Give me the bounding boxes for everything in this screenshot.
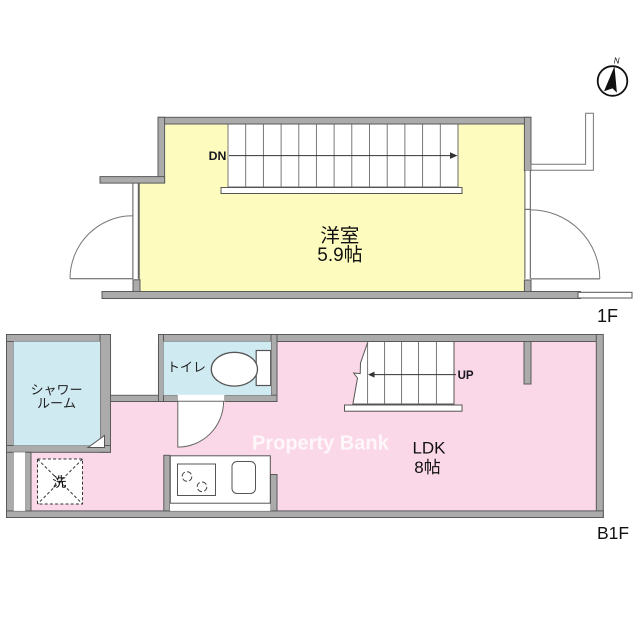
- svg-text:5.9: 5.9: [317, 245, 343, 266]
- svg-text:1F: 1F: [597, 306, 618, 326]
- svg-text:B1F: B1F: [597, 523, 629, 543]
- svg-text:UP: UP: [458, 370, 474, 382]
- svg-text:N: N: [614, 56, 620, 65]
- svg-text:Property Bank: Property Bank: [252, 433, 390, 455]
- svg-text:8: 8: [414, 458, 423, 477]
- svg-text:LDK: LDK: [412, 439, 446, 458]
- svg-text:DN: DN: [209, 149, 227, 163]
